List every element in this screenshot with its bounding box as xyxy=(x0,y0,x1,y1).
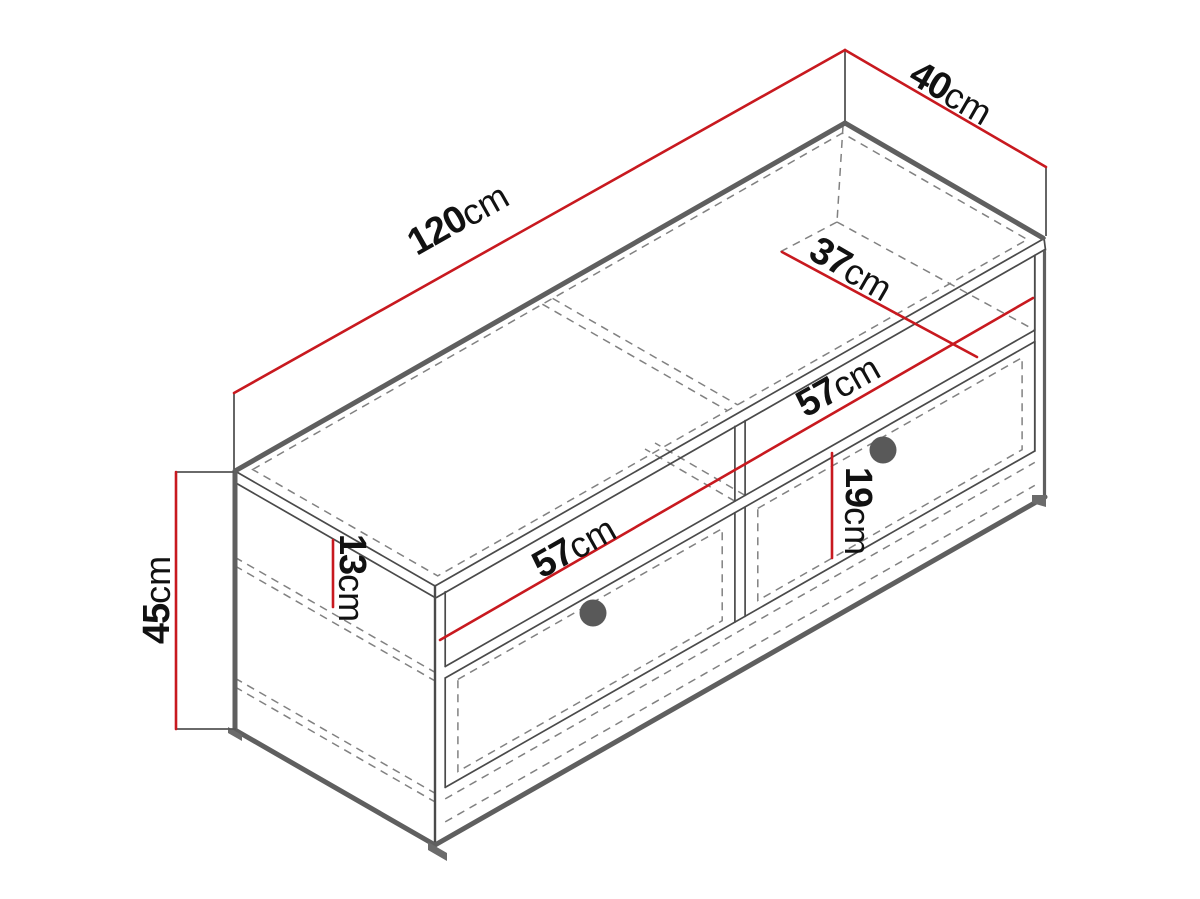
top-face-front-edge xyxy=(435,238,1045,586)
dimension-line-width xyxy=(234,50,845,393)
right-drawer-knob xyxy=(870,437,897,464)
dimension-line-section-widths xyxy=(440,298,1033,640)
dimension-labels: 120cm 40cm 37cm 57cm 57cm 19cm 13cm 45cm xyxy=(136,53,1000,644)
cabinet-isometric-drawing: 120cm 40cm 37cm 57cm 57cm 19cm 13cm 45cm xyxy=(0,0,1200,899)
bottom-rail-hidden-edge xyxy=(445,485,1035,822)
dim-label-drawer-height: 19cm xyxy=(837,467,879,555)
niche-floor-front-edge xyxy=(445,330,1035,666)
top-face-interior-outline xyxy=(253,133,1028,576)
furniture-dimension-diagram: 120cm 40cm 37cm 57cm 57cm 19cm 13cm 45cm xyxy=(0,0,1200,899)
drawer-bottom-edge xyxy=(445,451,1035,787)
partition-hidden-edge xyxy=(655,443,745,495)
left-drawer-knob xyxy=(580,600,607,627)
dim-label-niche-height: 13cm xyxy=(331,534,373,622)
bottom-left-edge xyxy=(235,730,435,845)
dim-label-depth: 40cm xyxy=(902,53,999,134)
dim-label-total-height: 45cm xyxy=(136,556,178,644)
dim-label-width: 120cm xyxy=(400,174,515,264)
bottom-panel-hidden-edge xyxy=(235,678,435,793)
silhouette-outline xyxy=(235,123,1045,845)
hidden-edges xyxy=(235,126,1035,822)
dimension-extension-lines xyxy=(175,50,1046,729)
partition-hidden-edge xyxy=(645,449,735,501)
top-right-edge xyxy=(845,123,1043,238)
partition-hidden-edge xyxy=(542,304,727,410)
dim-label-right-section: 57cm xyxy=(789,346,887,426)
shelf-front-bottom-edge xyxy=(445,342,1035,678)
partition-hidden-edge xyxy=(553,298,738,404)
dim-label-interior-depth: 37cm xyxy=(802,229,899,310)
dimension-lines xyxy=(176,50,1046,729)
bottom-rail-hidden-edge xyxy=(445,462,1035,799)
left-drawer-inset-outline xyxy=(458,529,722,772)
top-back-edge xyxy=(235,123,845,471)
niche-interior-corner-edge xyxy=(837,126,843,222)
